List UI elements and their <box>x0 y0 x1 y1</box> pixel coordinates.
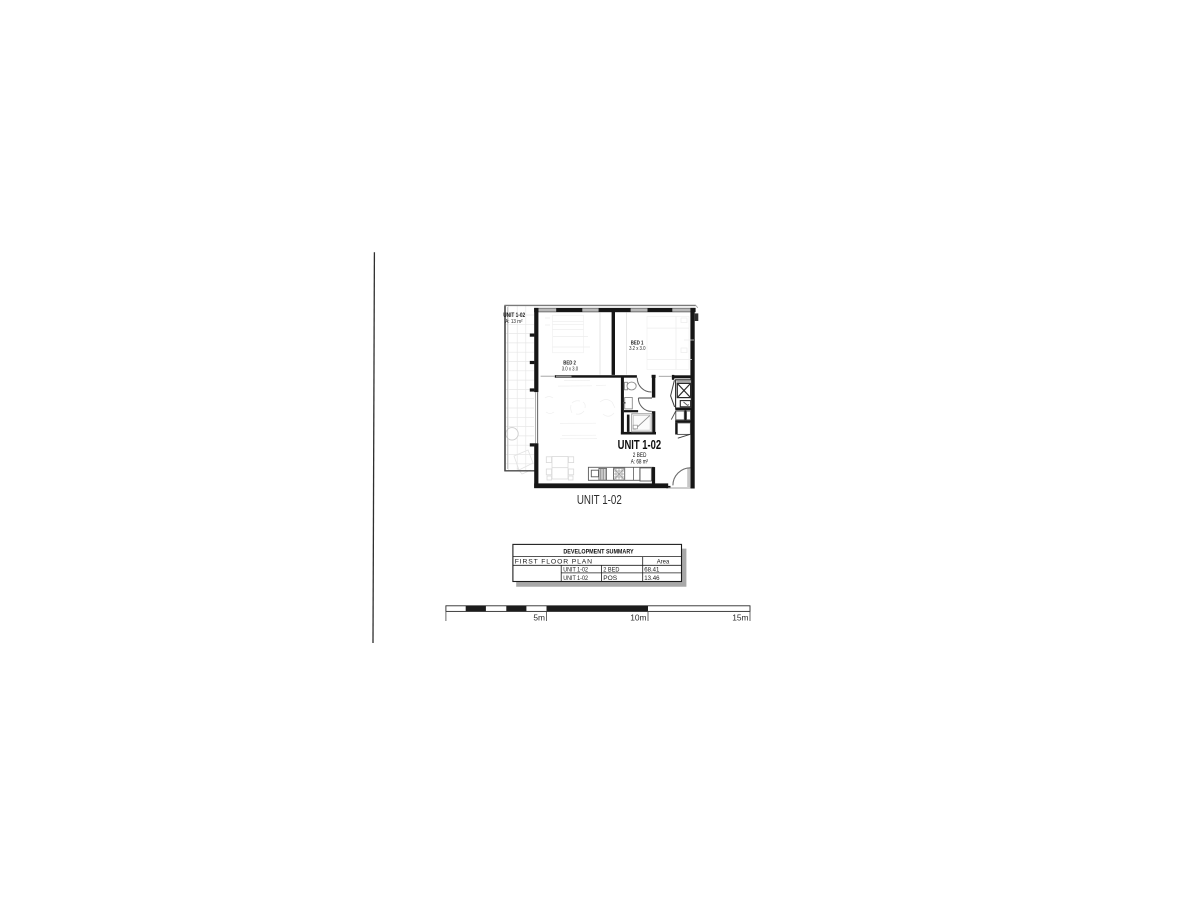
svg-text:POS: POS <box>603 575 618 582</box>
svg-text:BED 1: BED 1 <box>631 340 644 347</box>
svg-text:UNIT 1-02: UNIT 1-02 <box>618 439 662 453</box>
svg-text:10m: 10m <box>630 612 646 622</box>
svg-text:13.46: 13.46 <box>644 575 660 582</box>
svg-text:15m: 15m <box>732 612 748 622</box>
svg-text:FIRST FLOOR PLAN: FIRST FLOOR PLAN <box>515 558 593 565</box>
svg-text:DEVELOPMENT SUMMARY: DEVELOPMENT SUMMARY <box>563 549 633 556</box>
svg-text:3.0 x 3.0: 3.0 x 3.0 <box>562 366 579 373</box>
svg-text:A: 13 m²: A: 13 m² <box>505 318 523 325</box>
svg-text:5m: 5m <box>533 612 545 622</box>
svg-text:2 BED: 2 BED <box>603 566 620 574</box>
svg-text:3.2 x 3.0: 3.2 x 3.0 <box>629 346 646 353</box>
svg-text:UNIT 1-02: UNIT 1-02 <box>563 567 588 574</box>
svg-text:UNIT 1-02: UNIT 1-02 <box>577 494 622 507</box>
svg-text:68.41: 68.41 <box>644 566 660 573</box>
svg-text:UNIT 1-02: UNIT 1-02 <box>563 576 588 583</box>
svg-text:BED 2: BED 2 <box>563 360 576 367</box>
svg-text:Area: Area <box>657 558 670 565</box>
svg-text:A: 68 m²: A: 68 m² <box>631 459 648 466</box>
